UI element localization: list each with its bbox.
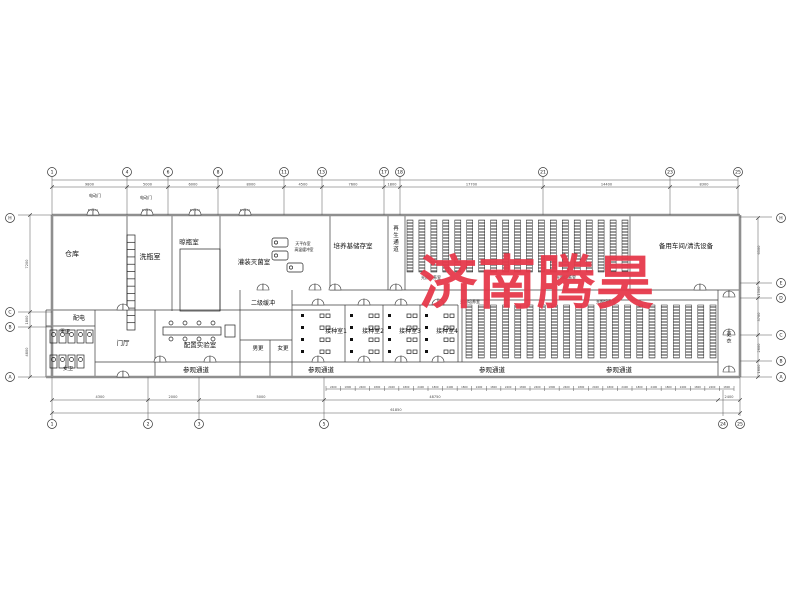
dim-text: 1800 [25, 316, 29, 325]
door-icon [315, 284, 321, 290]
inoculation-unit [407, 338, 411, 342]
dim-text: 1800 [578, 385, 585, 389]
door-icon [123, 304, 129, 310]
lab-bench [163, 327, 221, 335]
grid-bubble-number: C [8, 310, 11, 316]
toilet-fixture [88, 333, 92, 337]
cultivation-rack-column [686, 305, 692, 358]
door-icon [432, 356, 438, 362]
equipment-square [301, 350, 304, 353]
door-icon [723, 366, 729, 372]
dim-text: 7600 [349, 183, 358, 187]
watermark-text: 济南腾昊 [419, 254, 655, 312]
grid-bubble-number: E [780, 281, 783, 287]
room-label: 男更 [252, 345, 264, 352]
equipment-square [301, 338, 304, 341]
inoculation-unit [444, 338, 448, 342]
room-label: 洗瓶室 [140, 252, 161, 261]
grid-bubble-number: 1 [51, 422, 54, 428]
dim-text: 2400 [592, 385, 599, 389]
door-icon [723, 291, 729, 297]
door-icon [364, 299, 370, 305]
dim-text: 2400 [505, 385, 512, 389]
door-tag-label: M1521 [88, 208, 98, 212]
dim-text: 4300 [96, 395, 105, 399]
inoculation-unit [320, 326, 324, 330]
floorplan-drawing: M1521M1521M1521M152119800450006600088000… [0, 0, 800, 600]
inoculation-unit [326, 350, 330, 354]
dim-text: 1800 [374, 385, 381, 389]
room-label: 参观通道 [479, 365, 506, 374]
room-label: 电动门 [140, 194, 152, 200]
grid-bubble-number: 21 [540, 170, 546, 176]
dim-text: 5000 [143, 183, 152, 187]
inoculation-unit [375, 338, 379, 342]
door-icon [395, 356, 401, 362]
equipment-square [350, 314, 353, 317]
grid-bubble-number: 18 [397, 170, 403, 176]
inoculation-unit [375, 314, 379, 318]
equipment-square [350, 350, 353, 353]
door-icon [700, 284, 706, 290]
equipment-square [425, 338, 428, 341]
dim-text: 61850 [390, 408, 401, 412]
room-label: 晾瓶室 [179, 237, 199, 246]
grid-bubble-number: 24 [720, 422, 726, 428]
dim-text: 1500 [757, 287, 761, 296]
equipment-square [425, 326, 428, 329]
grid-bubble-number: 6 [167, 170, 170, 176]
dim-text: 2000 [169, 395, 178, 399]
door-icon [395, 299, 401, 305]
dim-text: 9800 [85, 183, 94, 187]
door-icon [364, 356, 370, 362]
grid-bubble-number: 17 [381, 170, 387, 176]
room-label: 男卫 [60, 329, 70, 335]
room-label: 二级缓冲 [251, 299, 275, 307]
grid-bubble-number: 11 [281, 170, 287, 176]
inoculation-unit [326, 314, 330, 318]
door-icon [390, 284, 396, 290]
dim-text: 1800 [723, 385, 730, 389]
door-icon [729, 366, 735, 372]
lab-stool [197, 321, 201, 325]
dim-text: 48750 [429, 395, 440, 399]
room-label: 参观通道 [183, 365, 210, 374]
grid-bubble-number: 4 [126, 170, 129, 176]
inoculation-unit [413, 338, 417, 342]
grid-bubble-number: C [779, 333, 782, 339]
dim-text: 2400 [388, 385, 395, 389]
dim-text: 4500 [299, 183, 308, 187]
inoculation-unit [413, 314, 417, 318]
floorplan-canvas: M1521M1521M1521M152119800450006600088000… [0, 0, 800, 600]
room-label: 配电 [73, 314, 85, 322]
grid-bubble-number: D [779, 296, 783, 302]
door-icon [401, 299, 407, 305]
inoculation-unit [375, 350, 379, 354]
inoculation-unit [369, 350, 373, 354]
room-label: 参观通道 [308, 365, 335, 374]
door-icon [318, 299, 324, 305]
equipment-square [388, 350, 391, 353]
dim-text: 5000 [257, 395, 266, 399]
door-icon [335, 284, 341, 290]
door-tag-label: M1521 [142, 208, 152, 212]
dim-text: 1800 [388, 183, 397, 187]
room-label: 接种室1 [325, 327, 347, 335]
grid-bubble-number: 2 [147, 422, 150, 428]
room-label: 备用车间/清洗设备 [659, 241, 714, 250]
bottle-drying-hatch-area [180, 249, 220, 311]
room-label: 参观通道 [606, 365, 633, 374]
dim-text: 2400 [651, 385, 658, 389]
grid-bubble-number: 3 [198, 422, 201, 428]
room-label: 门厅 [117, 338, 131, 347]
room-label: 接种室2 [362, 327, 384, 335]
equipment-square [350, 326, 353, 329]
door-icon [694, 284, 700, 290]
inoculation-unit [450, 338, 454, 342]
room-label: 仓库 [65, 249, 79, 258]
door-icon [358, 356, 364, 362]
dim-text: 1800 [490, 385, 497, 389]
lab-stool [169, 321, 173, 325]
dim-text: 1800 [549, 385, 556, 389]
door-icon [117, 371, 123, 377]
grid-bubble-number: B [8, 325, 11, 331]
dim-text: 8000 [247, 183, 256, 187]
door-icon [401, 356, 407, 362]
toilet-fixture [61, 358, 65, 362]
dim-text: 1800 [519, 385, 526, 389]
dim-text: 1800 [607, 385, 614, 389]
cultivation-rack-column [698, 305, 704, 358]
grid-bubble-number: B [779, 359, 782, 365]
inoculation-unit [450, 350, 454, 354]
grid-bubble-number: 8 [217, 170, 220, 176]
door-icon [160, 356, 166, 362]
rack-ladder [127, 235, 135, 330]
room-label: 电动门 [89, 192, 101, 198]
room-label: 天平存室 [295, 241, 310, 246]
dim-text: 4800 [25, 348, 29, 357]
dim-text: 8300 [700, 183, 709, 187]
toilet-fixture [79, 358, 83, 362]
dim-text: 2400 [447, 385, 454, 389]
grid-bubble-number: 23 [667, 170, 673, 176]
cultivation-rack-column [710, 305, 716, 358]
door-icon [312, 356, 318, 362]
dim-text: 17700 [466, 183, 477, 187]
inoculation-unit [444, 350, 448, 354]
toilet-fixture [70, 358, 74, 362]
dim-text: 1800 [665, 385, 672, 389]
grid-bubble-number: 25 [737, 422, 743, 428]
dim-text: 1600 [757, 365, 761, 374]
door-tag-label: M1521 [240, 208, 250, 212]
lab-equipment [225, 325, 235, 337]
equipment-square [350, 338, 353, 341]
inoculation-unit [413, 350, 417, 354]
equipment-square [388, 326, 391, 329]
dim-text: 2400 [725, 395, 734, 399]
cultivation-rack-column [661, 305, 667, 358]
dim-text: 1800 [403, 385, 410, 389]
door-icon [318, 356, 324, 362]
grid-bubble-number: 25 [735, 170, 741, 176]
sterilizer-dial [289, 266, 292, 269]
inoculation-unit [369, 338, 373, 342]
door-icon [210, 356, 216, 362]
dim-text: 7200 [25, 260, 29, 269]
grid-bubble-number: H [779, 216, 782, 222]
door-icon [204, 356, 210, 362]
equipment-square [388, 338, 391, 341]
inoculation-unit [369, 314, 373, 318]
cultivation-rack-column [673, 305, 679, 358]
cultivation-rack-column [407, 220, 413, 272]
equipment-square [301, 314, 304, 317]
inoculation-unit [326, 338, 330, 342]
room-label: 高温缓冲室 [295, 247, 314, 252]
door-icon [257, 284, 263, 290]
sterilizer-dial [274, 241, 277, 244]
dim-text: 2600 [757, 344, 761, 353]
room-label: 灌装灭菌室 [238, 257, 271, 266]
dim-text: 1800 [694, 385, 701, 389]
inoculation-unit [320, 350, 324, 354]
grid-bubble-number: 1 [51, 170, 54, 176]
room-label: 女卫 [63, 365, 73, 372]
inoculation-unit [407, 350, 411, 354]
inoculation-unit [320, 338, 324, 342]
door-icon [729, 291, 735, 297]
grid-bubble-number: 5 [323, 422, 326, 428]
door-icon [396, 284, 402, 290]
dim-text: 1800 [461, 385, 468, 389]
equipment-square [301, 326, 304, 329]
dim-text: 1800 [345, 385, 352, 389]
dim-text: 1800 [432, 385, 439, 389]
door-icon [312, 299, 318, 305]
dim-text: 2400 [476, 385, 483, 389]
grid-bubble-number: H [8, 216, 11, 222]
room-label: 接种室4 [436, 327, 458, 335]
room-label: 培养基储存室 [334, 241, 374, 250]
door-icon [438, 356, 444, 362]
door-tag-label: M1521 [190, 208, 200, 212]
room-label: 女更 [277, 344, 289, 352]
room-label: 再生通道 [393, 225, 399, 253]
equipment-square [425, 350, 428, 353]
door-icon [358, 299, 364, 305]
door-icon [263, 284, 269, 290]
lab-stool [211, 321, 215, 325]
door-icon [117, 304, 123, 310]
dim-text: 3700 [757, 313, 761, 322]
dim-text: 2400 [563, 385, 570, 389]
inoculation-unit [407, 314, 411, 318]
dim-text: 2400 [330, 385, 337, 389]
door-icon [309, 284, 315, 290]
dim-text: 2400 [417, 385, 424, 389]
door-icon [123, 371, 129, 377]
dim-text: 2400 [680, 385, 687, 389]
equipment-square [388, 314, 391, 317]
grid-bubble-number: 13 [319, 170, 325, 176]
sterilizer-dial [274, 254, 277, 257]
toilet-fixture [79, 333, 83, 337]
room-label: 配置实验室 [184, 340, 217, 349]
dim-text: 2400 [709, 385, 716, 389]
inoculation-unit [320, 314, 324, 318]
dim-text: 2400 [359, 385, 366, 389]
dim-text: 6000 [189, 183, 198, 187]
dim-text: 2400 [621, 385, 628, 389]
toilet-fixture [70, 333, 74, 337]
lab-stool [169, 337, 173, 341]
dim-text: 14400 [601, 183, 612, 187]
room-label: 更衣 [726, 332, 731, 345]
dim-text: 1800 [636, 385, 643, 389]
dim-text: 2400 [534, 385, 541, 389]
dim-text: 6500 [757, 246, 761, 255]
room-label: 接种室3 [399, 327, 421, 335]
lab-stool [183, 321, 187, 325]
